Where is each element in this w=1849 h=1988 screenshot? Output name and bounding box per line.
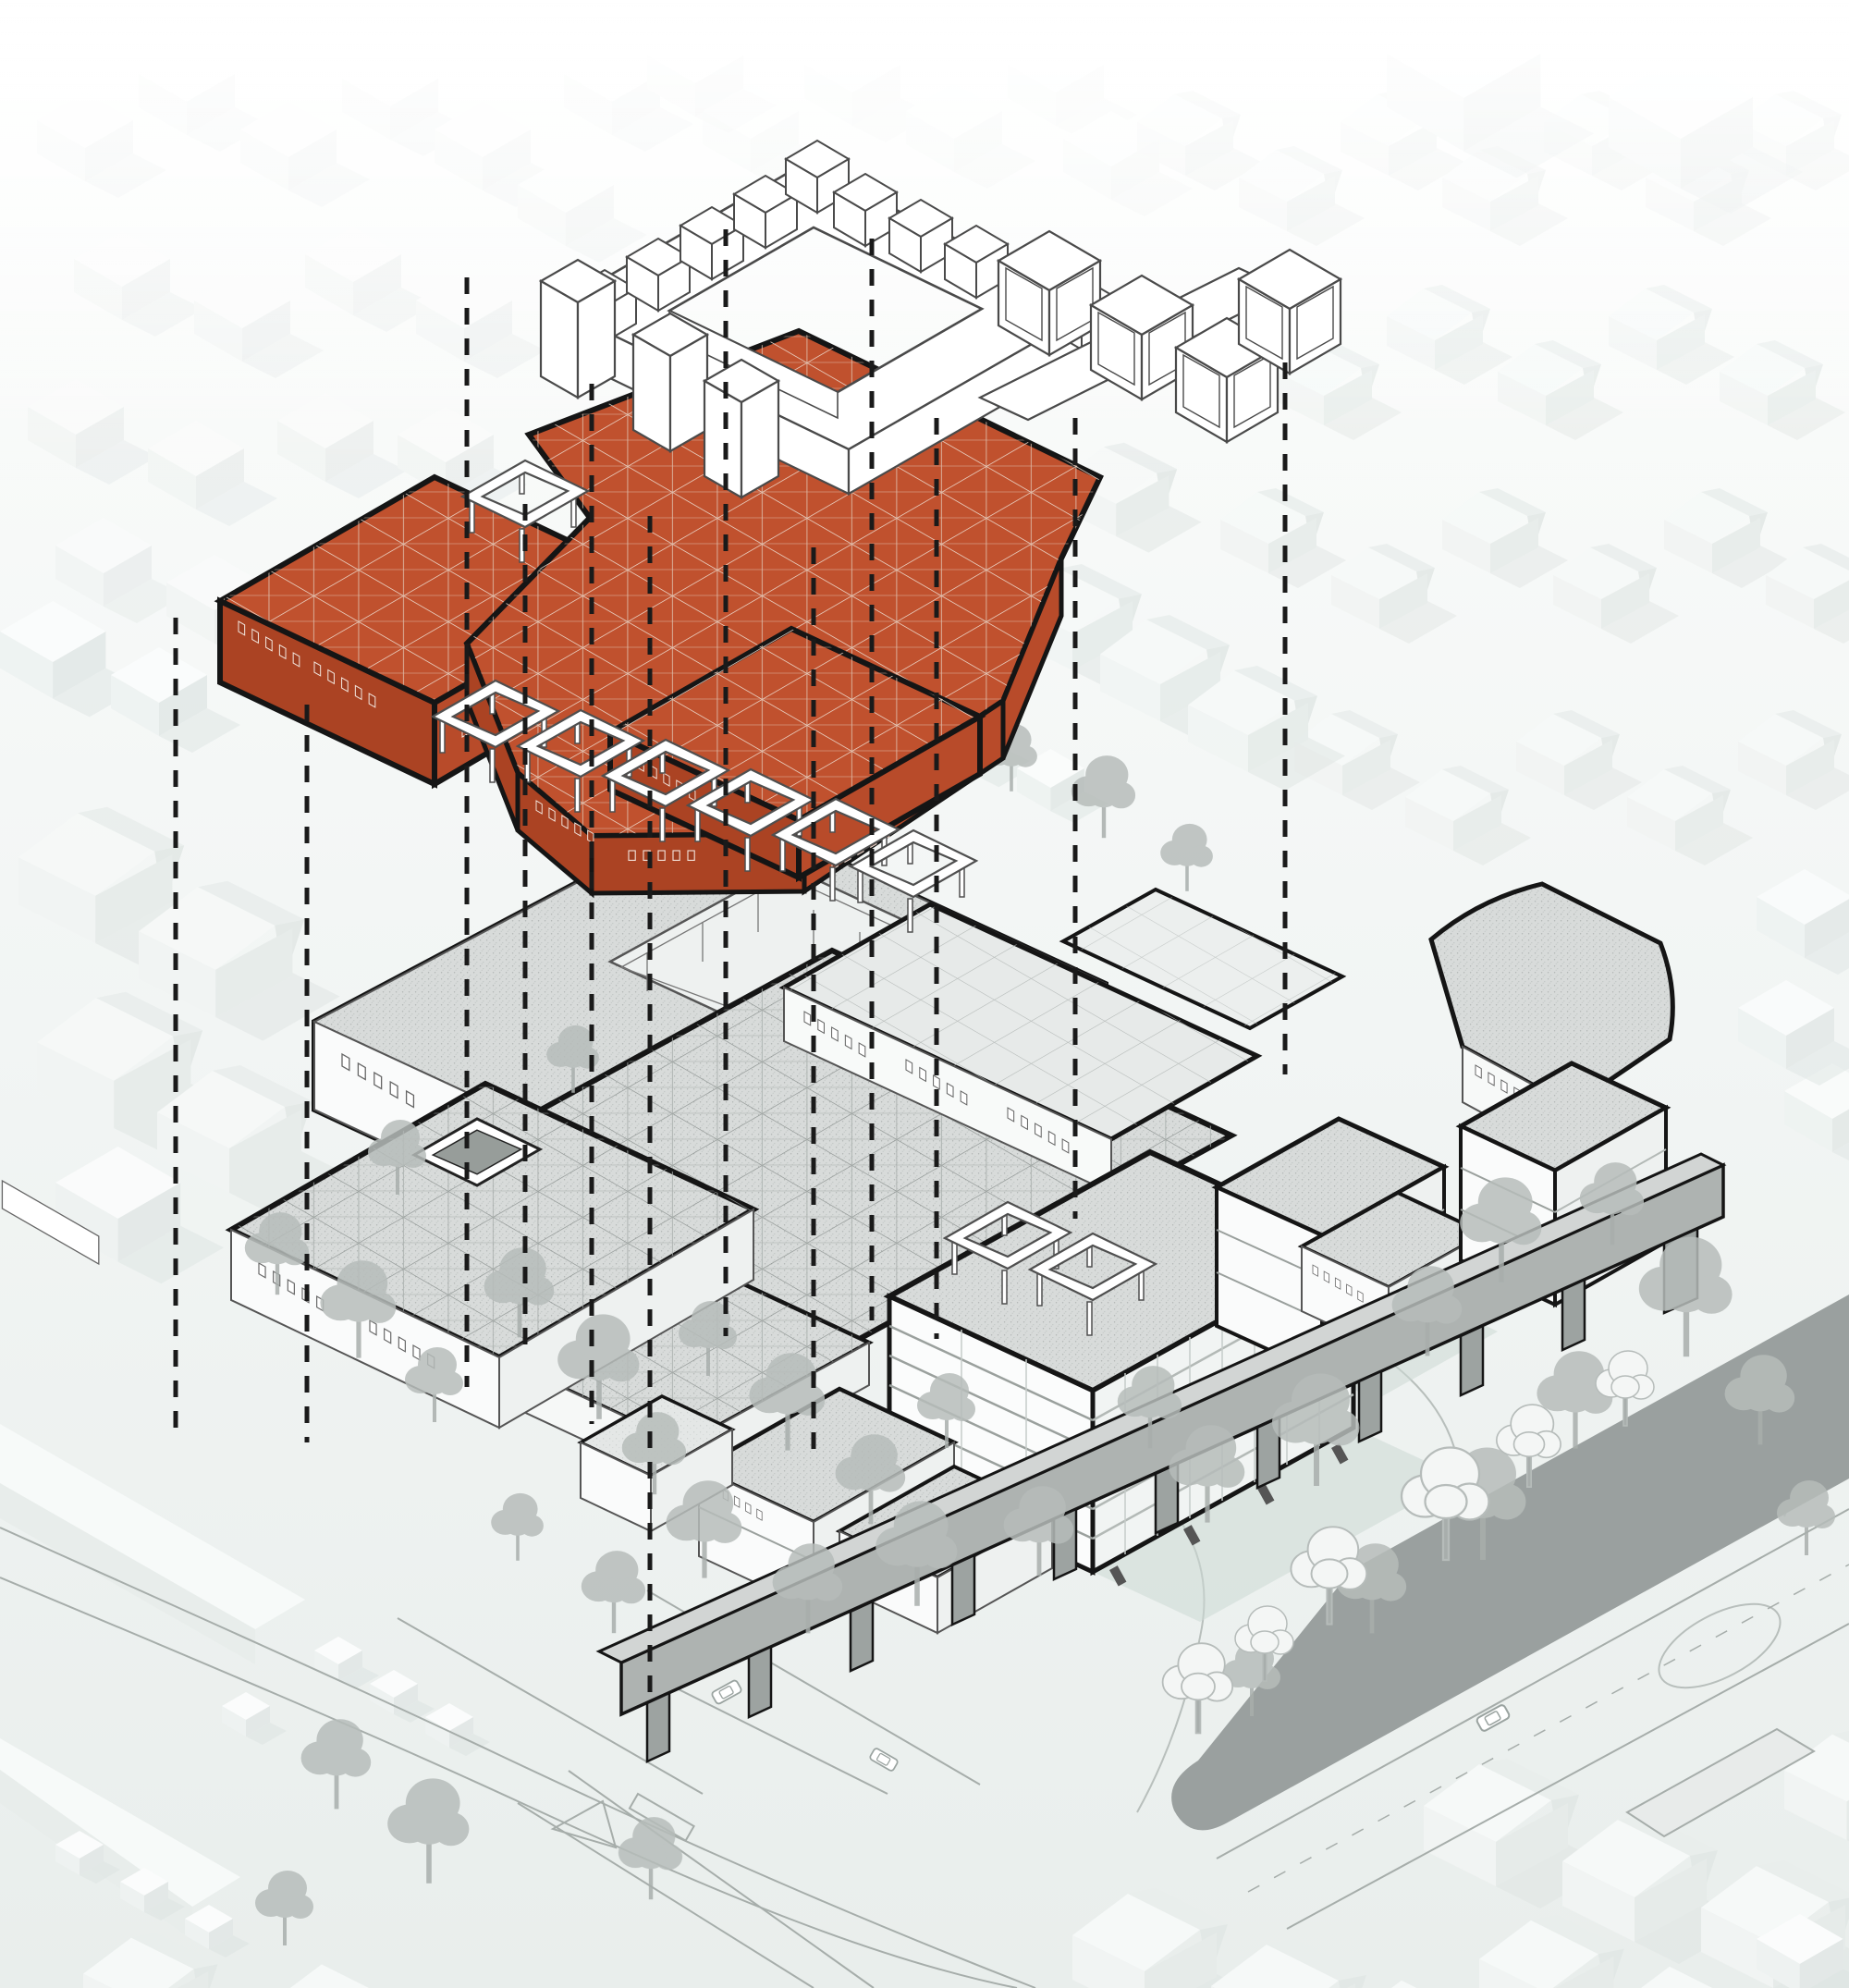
diagram-canvas xyxy=(0,0,1849,1988)
axonometric-scene xyxy=(0,0,1849,1988)
